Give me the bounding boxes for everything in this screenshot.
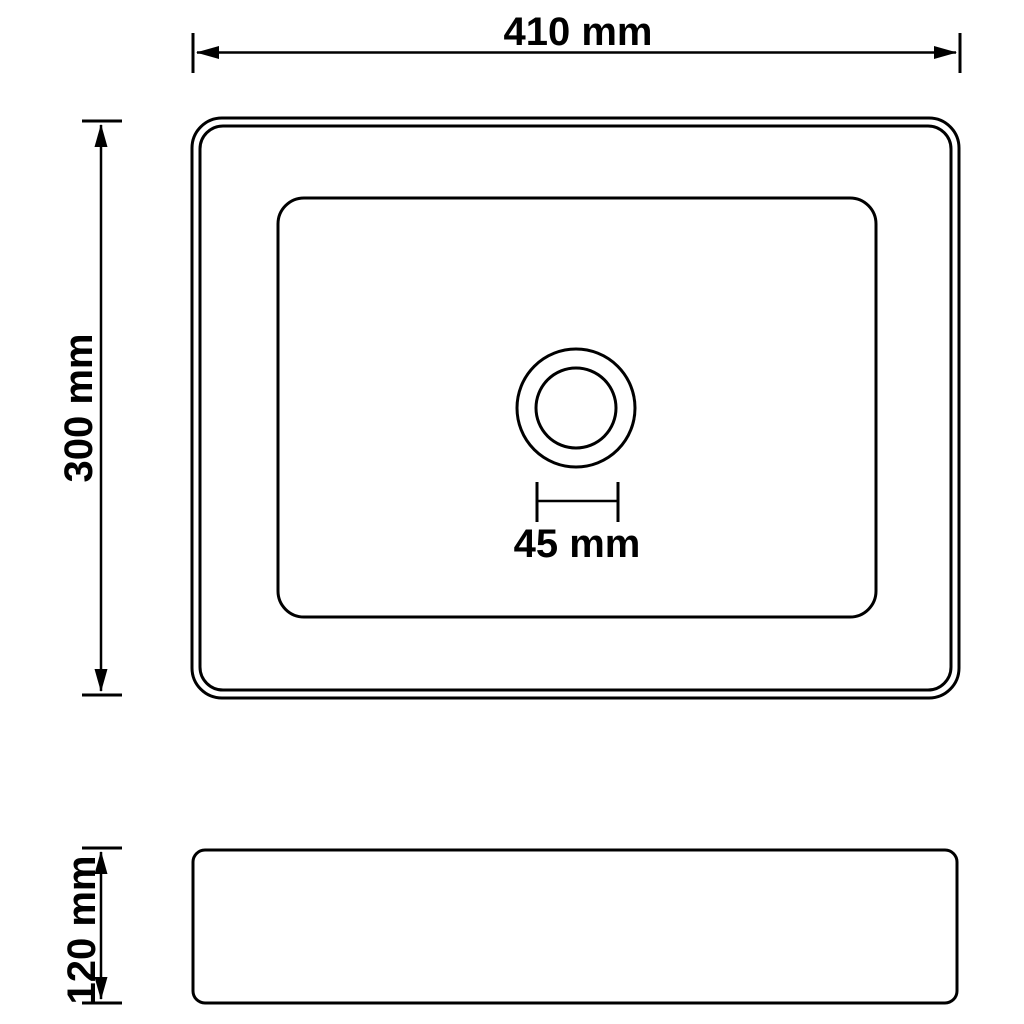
technical-drawing-page: 410 mm 300 mm	[0, 0, 1024, 1024]
side-profile	[193, 850, 957, 1003]
arrow-down-icon	[95, 669, 108, 692]
side-view	[193, 850, 957, 1003]
arrow-left-icon	[196, 46, 219, 59]
depth-dimension: 300 mm	[57, 121, 122, 695]
arrow-right-icon	[934, 46, 957, 59]
drain-dimension-label: 45 mm	[514, 522, 641, 566]
width-dimension: 410 mm	[193, 10, 960, 73]
height-dimension: 120 mm	[60, 848, 122, 1004]
inner-rim-contour	[200, 126, 951, 690]
depth-dimension-label: 300 mm	[57, 334, 101, 483]
drain-inner-circle	[536, 368, 616, 448]
drain-dimension: 45 mm	[514, 482, 641, 566]
top-view	[192, 118, 959, 698]
washbasin-dimension-diagram: 410 mm 300 mm	[0, 0, 1024, 1024]
outer-rim-contour	[192, 118, 959, 698]
width-dimension-label: 410 mm	[504, 10, 653, 54]
arrow-up-icon	[95, 124, 108, 147]
